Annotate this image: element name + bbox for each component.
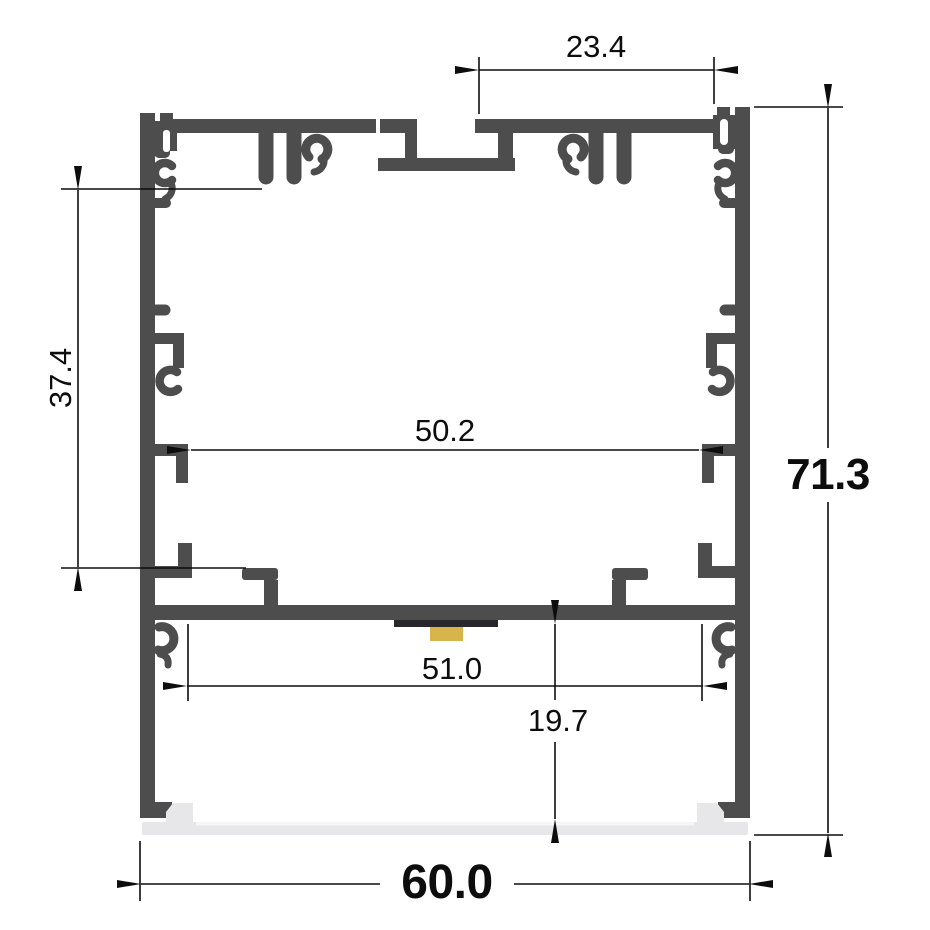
led-pcb [394,620,498,627]
dimension-label: 37.4 [43,348,78,408]
dimension-label: 71.3 [786,450,870,499]
right-wall [735,107,750,818]
led-profile-cross-section-drawing: 23.4 37.4 50.2 51.0 19.7 71.3 60.0 [0,0,930,930]
left-wall [140,113,155,818]
dimension-label: 19.7 [528,703,588,738]
dimension-label: 60.0 [401,856,492,909]
drawing-canvas: 23.4 37.4 50.2 51.0 19.7 71.3 60.0 [0,0,930,930]
top-channel-bottom [378,158,515,171]
inner-ledge [155,444,188,456]
led-mounting-plate [155,605,735,620]
led-chip [430,627,463,641]
dimension-label: 23.4 [566,29,626,64]
inner-ledge [702,444,735,456]
dimension-label: 51.0 [422,651,482,686]
dimension-label: 50.2 [415,413,475,448]
diffuser-highlight [196,822,694,826]
